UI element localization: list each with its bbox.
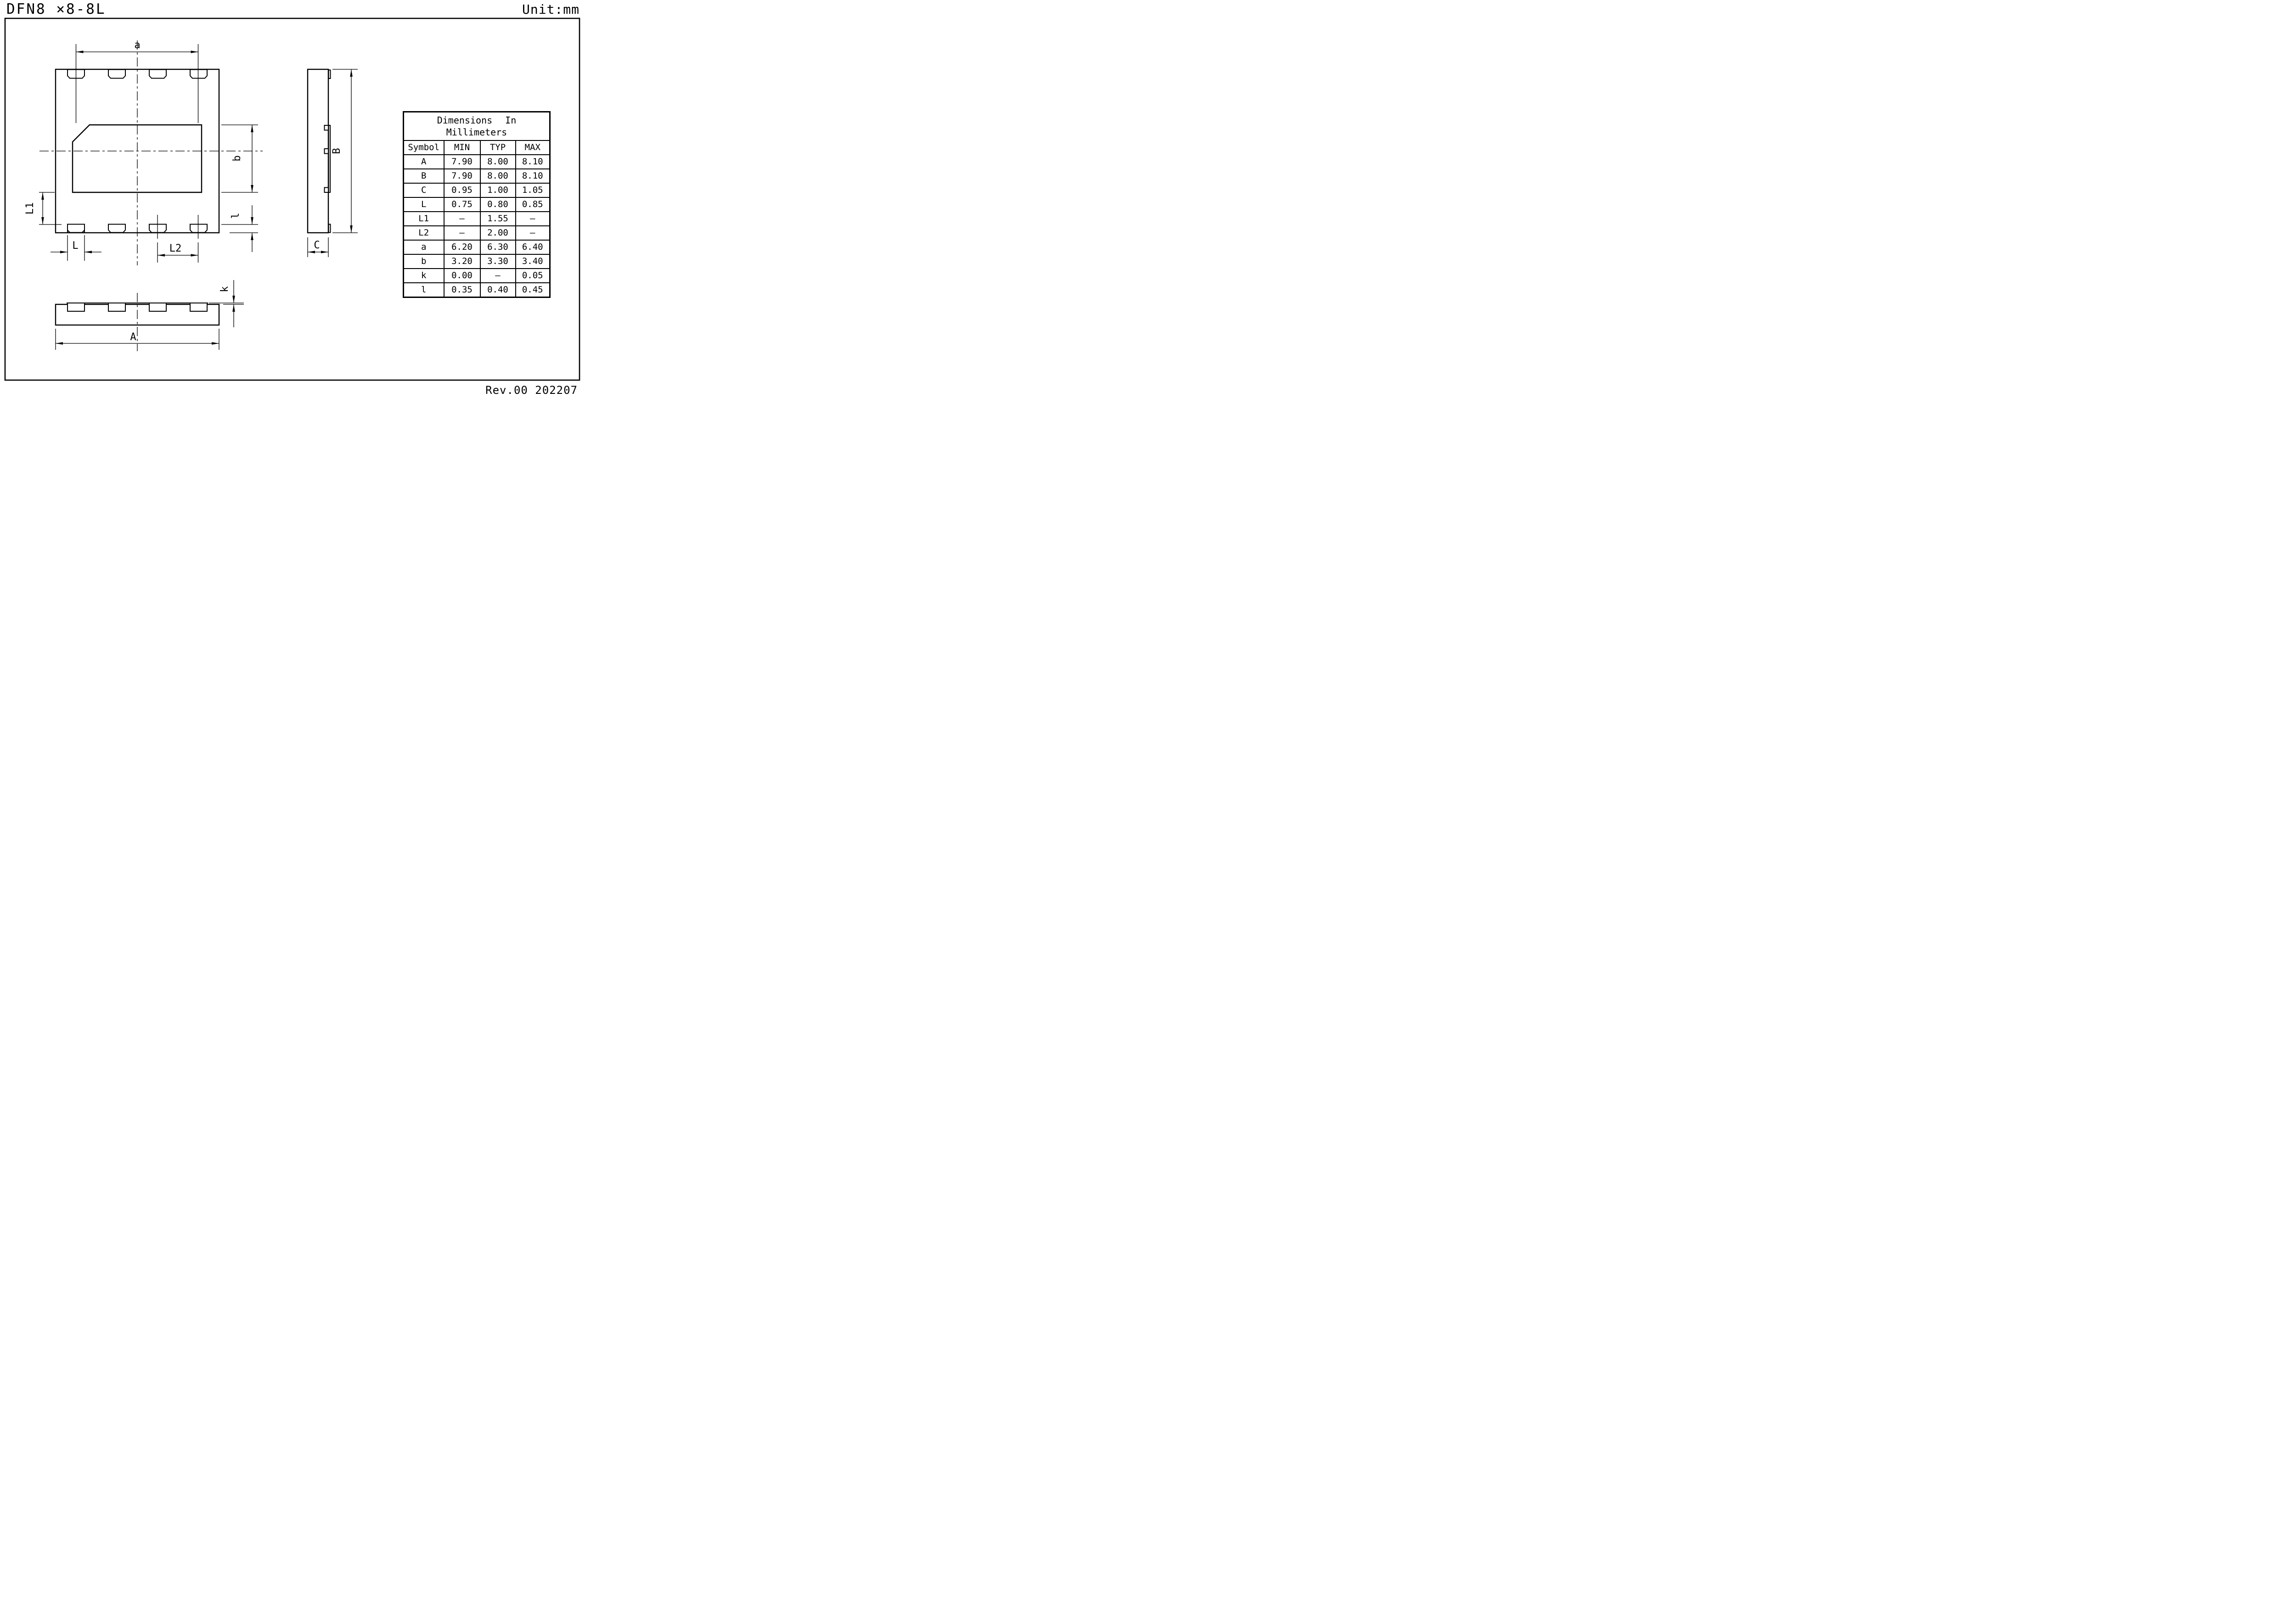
- cell-typ: 1.55: [480, 212, 516, 226]
- revision-label: Rev.00 202207: [485, 384, 578, 397]
- side-pad-square: [325, 149, 329, 154]
- table-title-line1: Dimensions In: [404, 114, 549, 126]
- dim-C-label: C: [314, 240, 320, 251]
- cell-max: 8.10: [516, 155, 550, 169]
- cell-symbol: b: [404, 254, 444, 269]
- table-row: b 3.20 3.30 3.40: [404, 254, 550, 269]
- cell-max: 0.85: [516, 197, 550, 212]
- pad: [68, 303, 84, 311]
- cell-symbol: L: [404, 197, 444, 212]
- front-view: [56, 293, 219, 351]
- table-header-row: Symbol MIN TYP MAX: [404, 140, 550, 155]
- cell-min: 0.00: [444, 269, 480, 283]
- cell-typ: 0.40: [480, 283, 516, 297]
- cell-max: –: [516, 212, 550, 226]
- pad: [108, 224, 125, 233]
- cell-symbol: A: [404, 155, 444, 169]
- cell-max: –: [516, 226, 550, 240]
- table-row: A 7.90 8.00 8.10: [404, 155, 550, 169]
- dim-L-label: L: [72, 240, 78, 252]
- pad: [149, 303, 166, 311]
- cell-typ: 1.00: [480, 183, 516, 197]
- cell-typ: 0.80: [480, 197, 516, 212]
- table-row: C 0.95 1.00 1.05: [404, 183, 550, 197]
- pad: [108, 303, 125, 311]
- side-tab-bottom: [329, 224, 331, 233]
- table-title-line2: Millimeters: [404, 126, 549, 138]
- side-tab-top: [329, 70, 331, 79]
- cell-max: 6.40: [516, 240, 550, 254]
- cell-typ: –: [480, 269, 516, 283]
- col-header-typ: TYP: [480, 140, 516, 155]
- dim-L2: L2: [158, 215, 198, 263]
- dim-k: k: [209, 280, 244, 327]
- cell-max: 1.05: [516, 183, 550, 197]
- dim-A-label: A: [130, 331, 136, 343]
- cell-typ: 6.30: [480, 240, 516, 254]
- cell-max: 0.05: [516, 269, 550, 283]
- table-row: L1 – 1.55 –: [404, 212, 550, 226]
- side-view: [308, 69, 331, 233]
- side-pad-square: [325, 188, 329, 193]
- table-row: a 6.20 6.30 6.40: [404, 240, 550, 254]
- dim-B: B: [331, 69, 358, 233]
- cell-symbol: a: [404, 240, 444, 254]
- side-ep-strip: [329, 125, 331, 192]
- dim-C: C: [308, 237, 328, 257]
- cell-max: 8.10: [516, 169, 550, 183]
- pad: [190, 224, 207, 233]
- side-pad-square: [325, 125, 329, 130]
- dimensions-table: Dimensions In Millimeters Symbol MIN TYP…: [403, 111, 551, 298]
- cell-max: 0.45: [516, 283, 550, 297]
- dim-l-label: l: [230, 213, 242, 219]
- cell-typ: 2.00: [480, 226, 516, 240]
- cell-typ: 3.30: [480, 254, 516, 269]
- dim-B-label: B: [331, 148, 343, 154]
- pad: [68, 224, 84, 233]
- table-title: Dimensions In Millimeters: [404, 112, 550, 141]
- cell-symbol: C: [404, 183, 444, 197]
- table-row: L2 – 2.00 –: [404, 226, 550, 240]
- cell-min: 7.90: [444, 155, 480, 169]
- pad: [149, 70, 166, 79]
- pad: [190, 303, 207, 311]
- cell-min: 7.90: [444, 169, 480, 183]
- dim-L1-label: L1: [24, 202, 36, 215]
- cell-max: 3.40: [516, 254, 550, 269]
- cell-typ: 8.00: [480, 169, 516, 183]
- pad: [108, 70, 125, 79]
- page-title: DFN8 ×8-8L: [6, 1, 106, 17]
- cell-min: –: [444, 226, 480, 240]
- cell-symbol: B: [404, 169, 444, 183]
- pad: [190, 70, 207, 79]
- cell-typ: 8.00: [480, 155, 516, 169]
- cell-min: 0.75: [444, 197, 480, 212]
- cell-symbol: l: [404, 283, 444, 297]
- table-row: k 0.00 – 0.05: [404, 269, 550, 283]
- cell-symbol: L2: [404, 226, 444, 240]
- dim-l: l: [221, 205, 258, 252]
- drawing-sheet: DFN8 ×8-8L Unit:mm Rev.00 202207: [0, 0, 583, 401]
- dim-b: b: [221, 125, 258, 192]
- col-header-symbol: Symbol: [404, 140, 444, 155]
- table-row: L 0.75 0.80 0.85: [404, 197, 550, 212]
- cell-symbol: k: [404, 269, 444, 283]
- cell-min: 6.20: [444, 240, 480, 254]
- dim-k-label: k: [219, 286, 231, 292]
- dim-a-label: a: [134, 39, 140, 51]
- dim-b-label: b: [231, 155, 243, 161]
- table-row: l 0.35 0.40 0.45: [404, 283, 550, 297]
- cell-min: –: [444, 212, 480, 226]
- col-header-max: MAX: [516, 140, 550, 155]
- cell-min: 0.95: [444, 183, 480, 197]
- cell-min: 0.35: [444, 283, 480, 297]
- cell-symbol: L1: [404, 212, 444, 226]
- table-title-row: Dimensions In Millimeters: [404, 112, 550, 141]
- dim-L: L: [51, 235, 101, 261]
- dim-L2-label: L2: [169, 243, 182, 254]
- unit-label: Unit:mm: [522, 2, 580, 17]
- table-row: B 7.90 8.00 8.10: [404, 169, 550, 183]
- cell-min: 3.20: [444, 254, 480, 269]
- main-view: [39, 40, 263, 265]
- col-header-min: MIN: [444, 140, 480, 155]
